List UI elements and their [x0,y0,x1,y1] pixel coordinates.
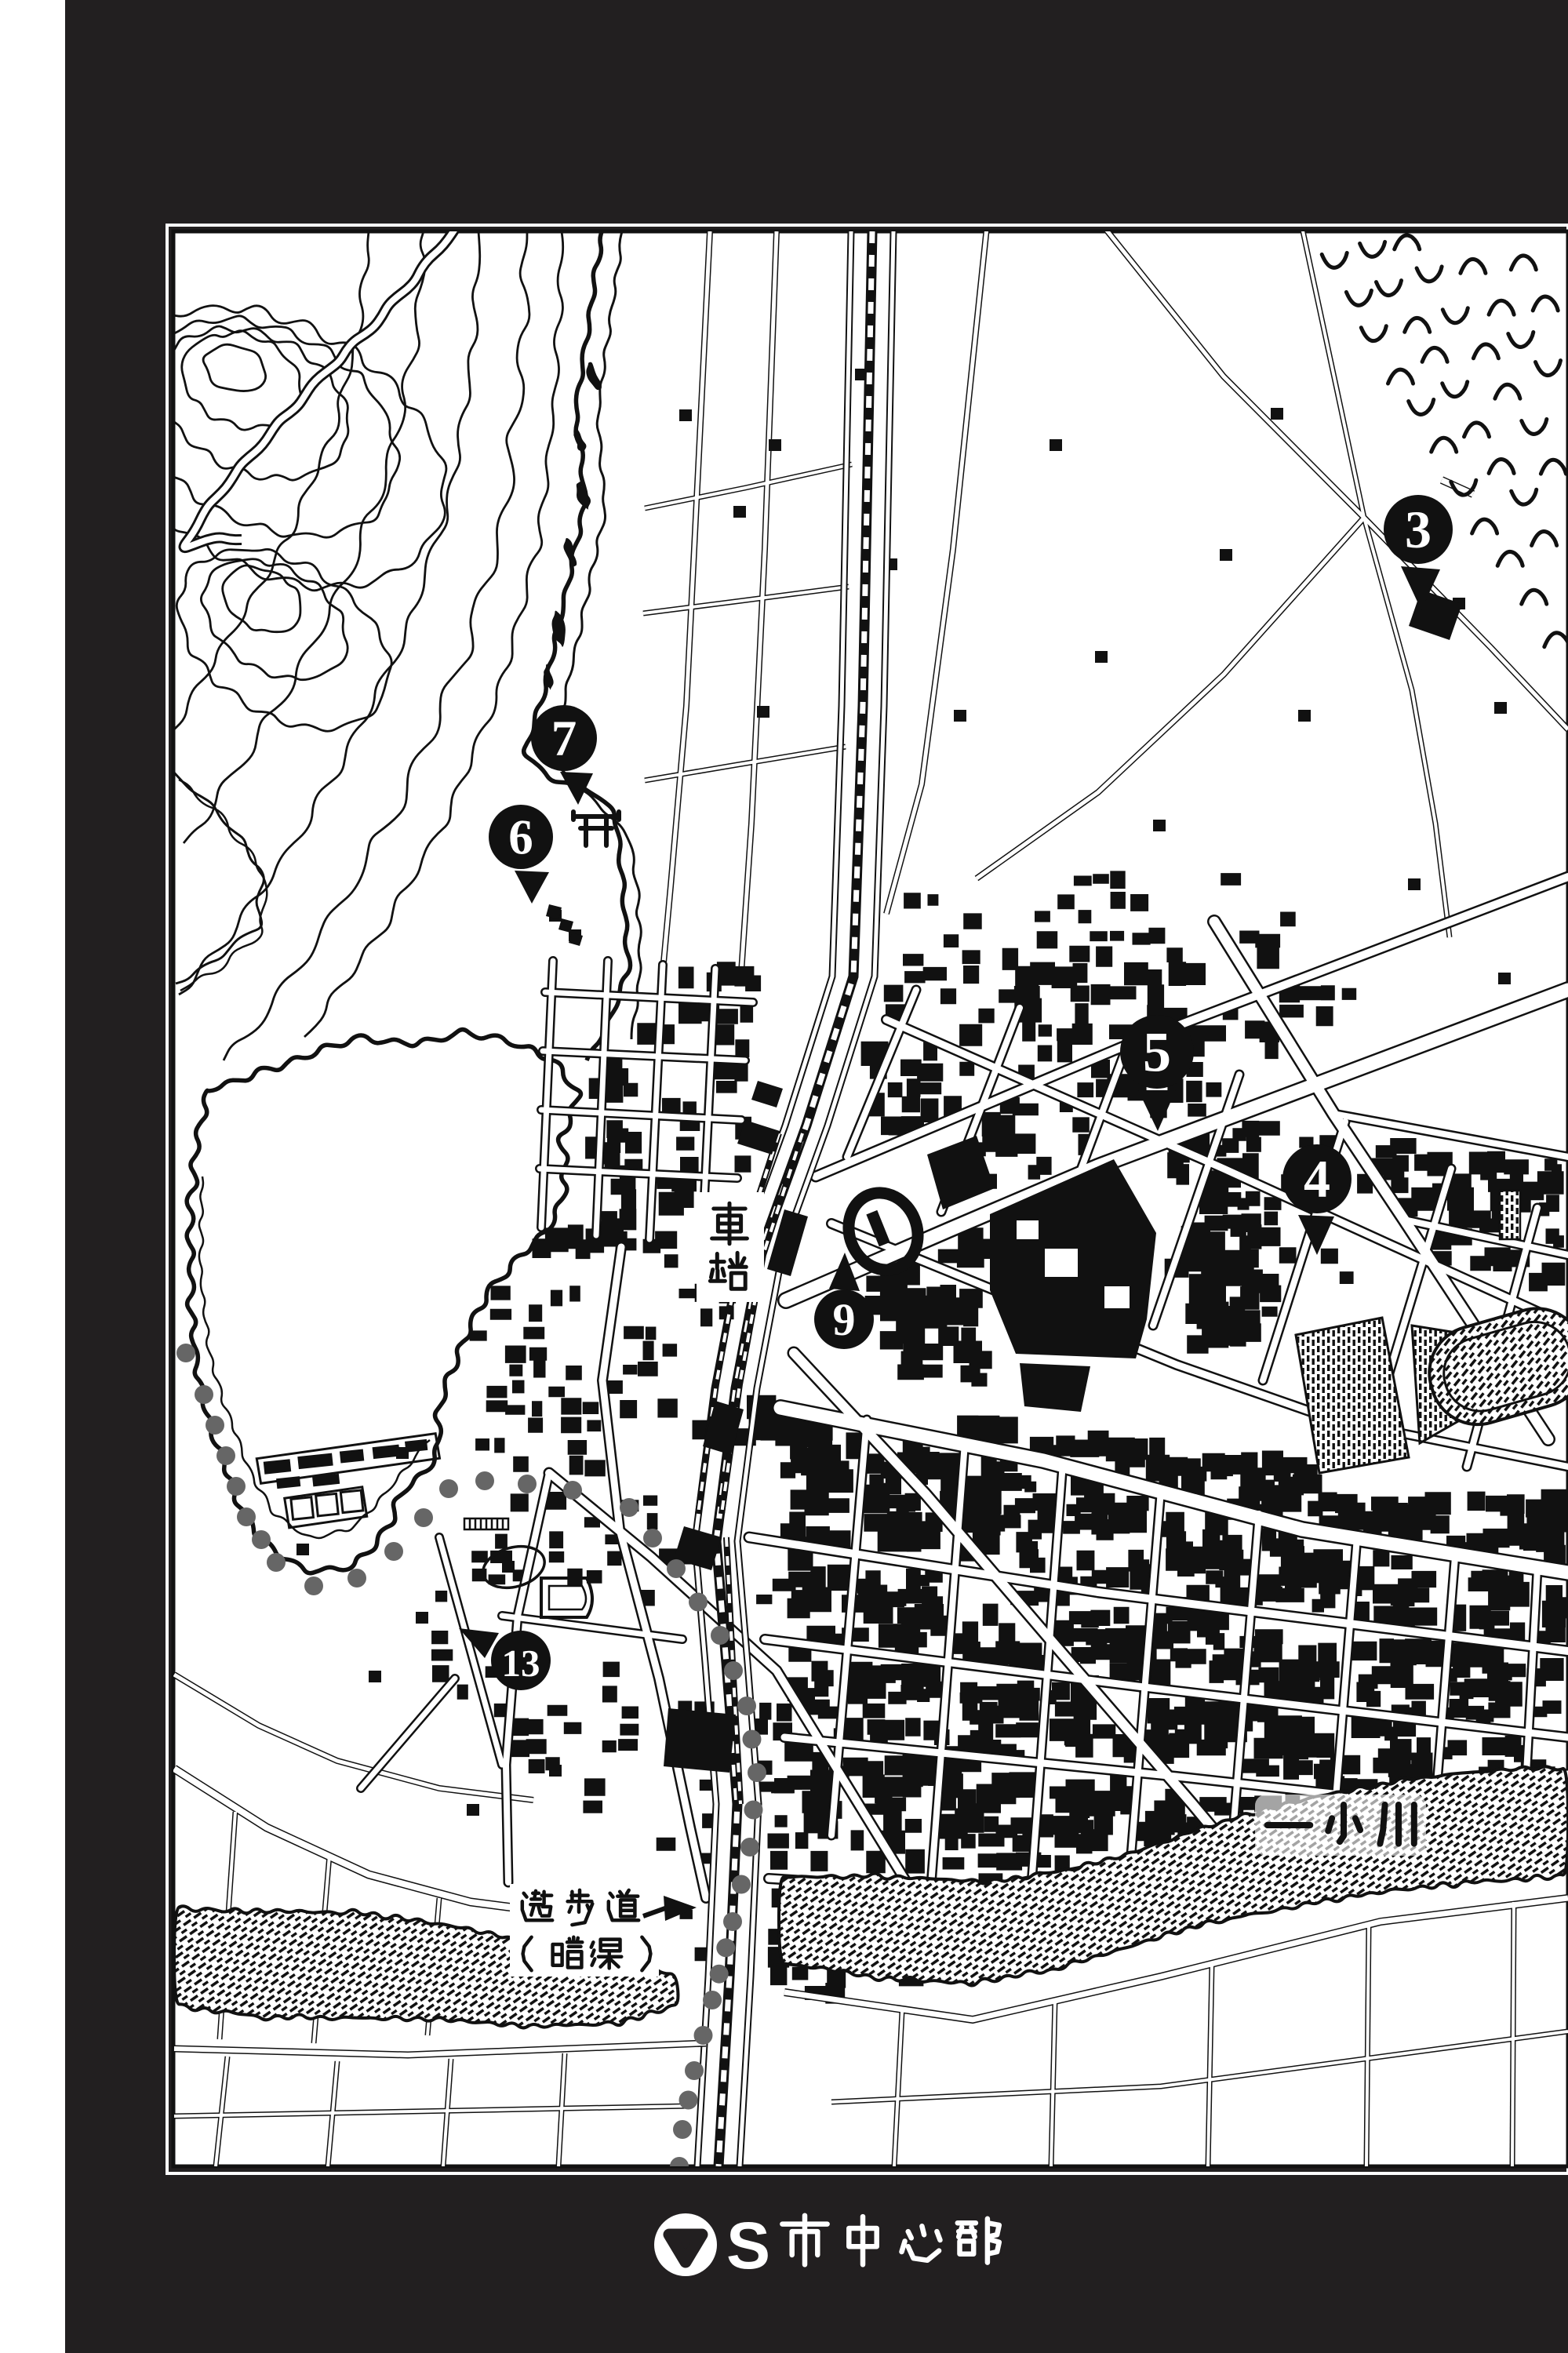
svg-text:S: S [726,2209,770,2282]
svg-text:13: 13 [502,1642,540,1685]
svg-text:6: 6 [508,809,533,864]
svg-text:4: 4 [1304,1149,1330,1209]
svg-text:3: 3 [1405,500,1432,559]
svg-text:9: 9 [833,1294,856,1345]
svg-text:5: 5 [1143,1020,1171,1083]
svg-text:7: 7 [551,711,577,767]
